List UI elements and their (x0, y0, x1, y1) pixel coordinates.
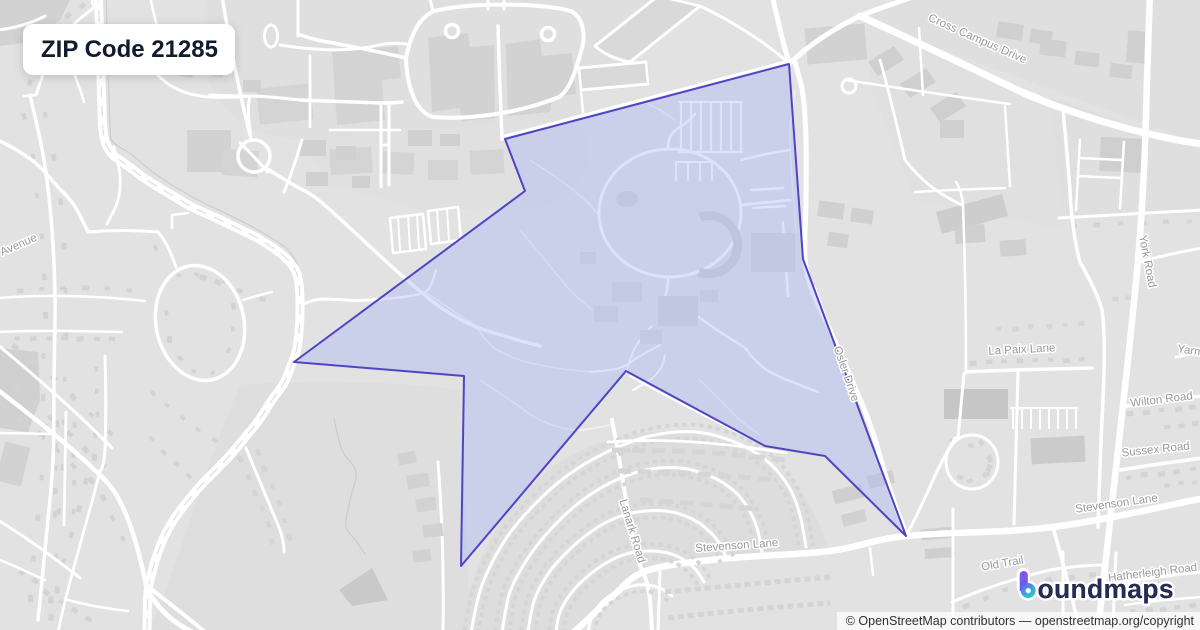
svg-text:oundmaps: oundmaps (1038, 574, 1174, 604)
